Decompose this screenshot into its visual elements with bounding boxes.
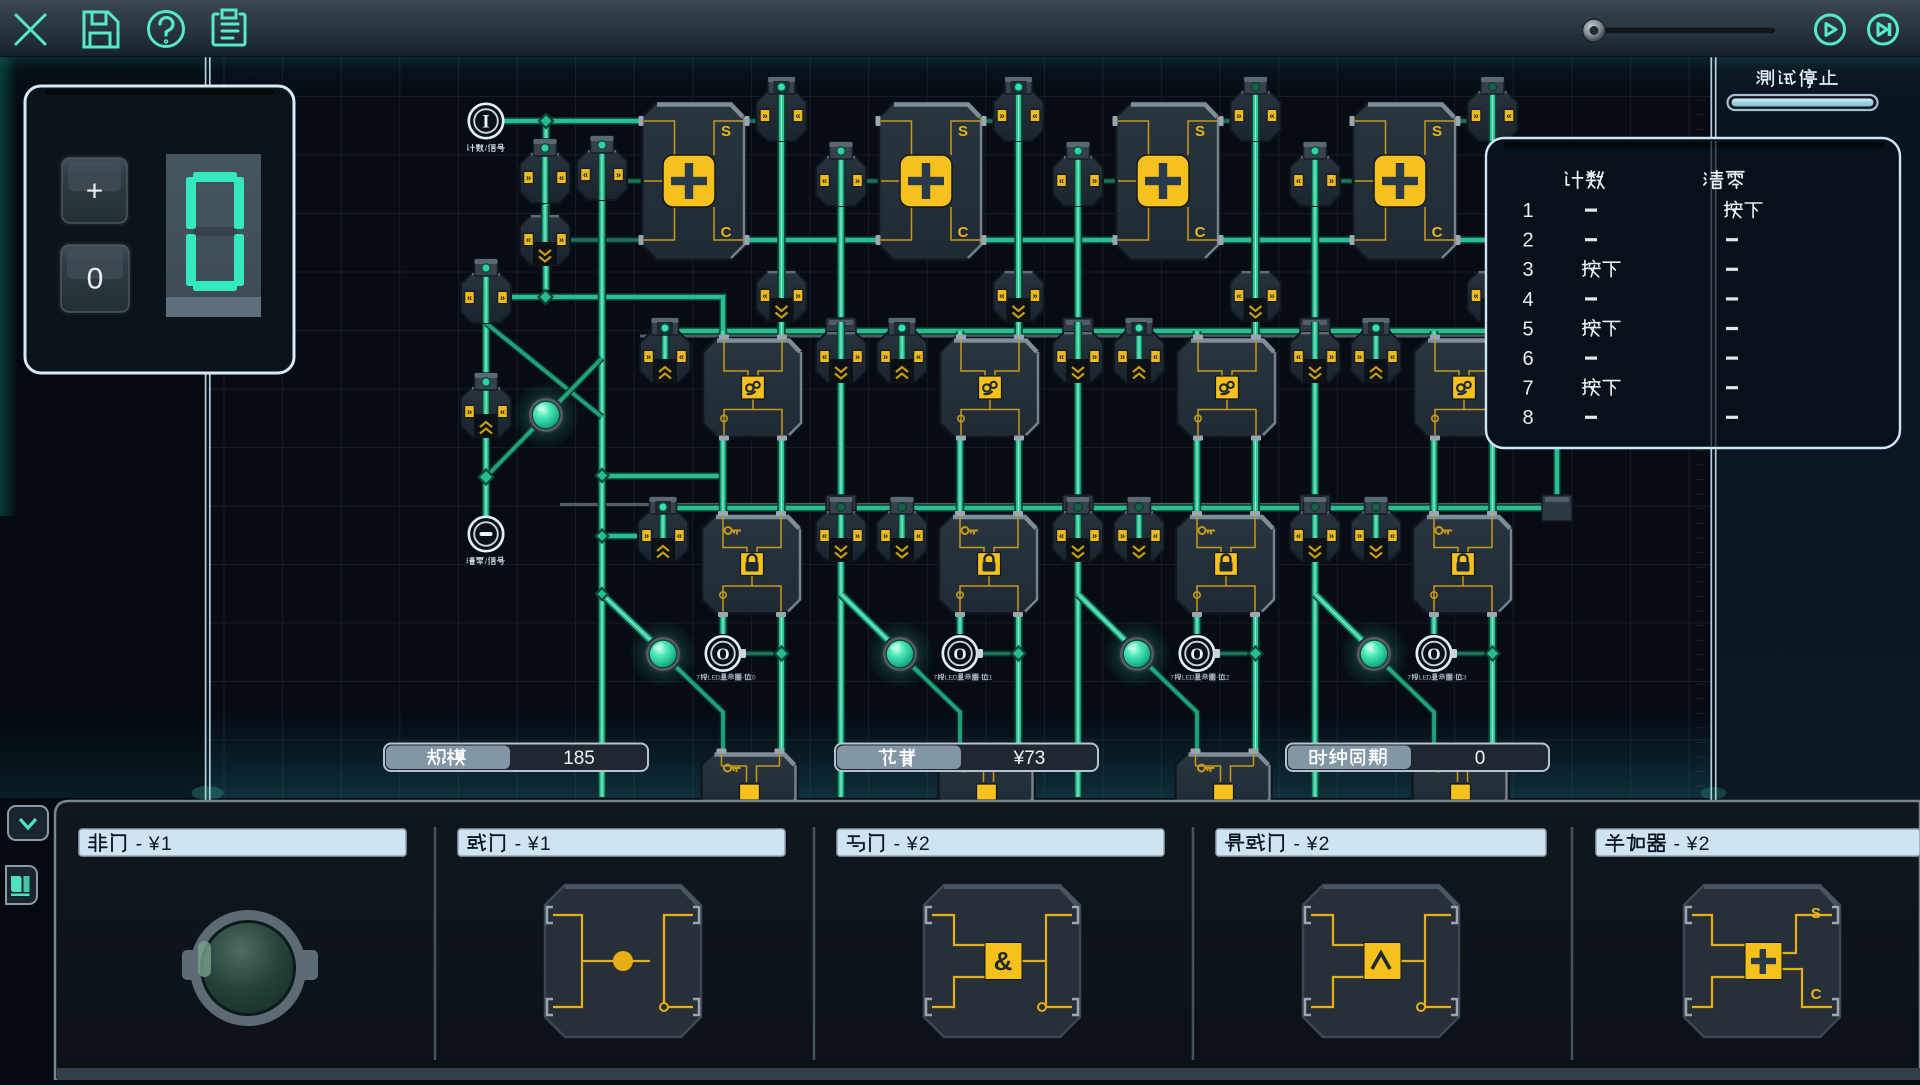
svg-text:O: O [953,645,966,664]
svg-text:»: » [883,352,888,363]
svg-text:«: « [1153,352,1158,363]
svg-text:»: » [1120,531,1125,542]
svg-text:1: 1 [1522,200,1533,222]
svg-text:-: - [1453,674,1455,681]
svg-text:»: » [762,111,767,122]
svg-text:»: » [795,291,800,302]
svg-text:»: » [1092,176,1097,187]
svg-text:O: O [716,645,729,664]
svg-text:C: C [1195,224,1206,241]
svg-text:«: « [1296,176,1301,187]
svg-text:2: 2 [1319,833,1330,855]
svg-text:¥: ¥ [1686,833,1698,855]
svg-text:»: » [1120,352,1125,363]
svg-text:«: « [679,352,684,363]
svg-text:¥: ¥ [1306,833,1318,855]
svg-text:¥73: ¥73 [1013,748,1046,769]
svg-text:-: - [894,833,901,855]
svg-text:S: S [1432,123,1442,140]
svg-text:2: 2 [1226,674,1230,681]
svg-text:3: 3 [1522,259,1533,281]
svg-text:1: 1 [161,833,172,855]
svg-text:¥: ¥ [527,833,539,855]
svg-text:I: I [482,112,489,133]
svg-text:-: - [1216,674,1218,681]
svg-text:«: « [1390,352,1395,363]
svg-text:D: D [1427,674,1432,681]
svg-text:«: « [1236,291,1241,302]
svg-text:7: 7 [1522,378,1533,400]
svg-text:«: « [795,111,800,122]
svg-text:&: & [994,946,1013,976]
svg-text:«: « [1390,531,1395,542]
svg-text:D: D [953,674,958,681]
svg-text:»: » [1329,176,1334,187]
svg-text:C: C [721,224,732,241]
svg-text:1: 1 [989,674,993,681]
svg-text:«: « [1296,531,1301,542]
svg-text:«: « [999,291,1004,302]
svg-text:¥: ¥ [148,833,160,855]
svg-text:185: 185 [563,748,595,769]
svg-text:»: » [855,531,860,542]
svg-text:S: S [1811,905,1821,922]
svg-text:»: » [1357,352,1362,363]
svg-text:«: « [1153,531,1158,542]
svg-text:2: 2 [1699,833,1710,855]
svg-text:-: - [742,674,744,681]
svg-text:»: » [999,111,1004,122]
svg-text:C: C [1811,986,1822,1003]
svg-text:»: » [855,352,860,363]
svg-text:-: - [1294,833,1301,855]
svg-text:7: 7 [696,674,700,681]
svg-text:»: » [1329,352,1334,363]
svg-text:»: » [1236,111,1241,122]
svg-text:2: 2 [1522,230,1533,252]
svg-text:7: 7 [1170,674,1174,681]
svg-text:4: 4 [1522,289,1533,311]
svg-text:O: O [1190,645,1203,664]
svg-text:«: « [500,407,505,418]
svg-text:»: » [644,531,649,542]
svg-text:-: - [979,674,981,681]
svg-text:«: « [822,531,827,542]
svg-text:3: 3 [1463,674,1467,681]
svg-text:»: » [1357,531,1362,542]
svg-text:6: 6 [1522,348,1533,370]
svg-text:C: C [958,224,969,241]
svg-text:»: » [616,170,621,181]
svg-text:2: 2 [919,833,930,855]
svg-text:«: « [822,352,827,363]
svg-text:»: » [467,407,472,418]
svg-text:»: » [646,352,651,363]
svg-text:+: + [86,175,104,208]
svg-text:«: « [762,291,767,302]
svg-text:»: » [1473,111,1478,122]
svg-text:1: 1 [540,833,551,855]
svg-text:-: - [1674,833,1681,855]
svg-text:0: 0 [87,263,104,296]
svg-text:¥: ¥ [906,833,918,855]
svg-text:»: » [559,235,564,246]
svg-text:»: » [883,531,888,542]
svg-text:C: C [1432,224,1443,241]
svg-text:«: « [1506,111,1511,122]
svg-text:«: « [1296,352,1301,363]
svg-text:»: » [1269,291,1274,302]
svg-text:«: « [822,176,827,187]
svg-text:«: « [583,170,588,181]
svg-text:8: 8 [1522,407,1533,429]
svg-text:«: « [1059,176,1064,187]
svg-text:0: 0 [752,674,756,681]
svg-text:«: « [526,235,531,246]
svg-text:S: S [721,123,731,140]
svg-text:5: 5 [1522,318,1533,340]
svg-text:«: « [677,531,682,542]
svg-text:»: » [500,293,505,304]
svg-text:»: » [855,176,860,187]
svg-text:-: - [515,833,522,855]
svg-text:»: » [1092,531,1097,542]
svg-text:D: D [1190,674,1195,681]
svg-text:«: « [1059,352,1064,363]
svg-text:«: « [467,293,472,304]
svg-text:-: - [136,833,143,855]
svg-text:«: « [1059,531,1064,542]
svg-text:S: S [958,123,968,140]
svg-text:S: S [1195,123,1205,140]
svg-text:»: » [526,173,531,184]
svg-text:7: 7 [1407,674,1411,681]
svg-text:«: « [1032,111,1037,122]
svg-text:»: » [1329,531,1334,542]
svg-text:O: O [1427,645,1440,664]
svg-text:«: « [916,352,921,363]
svg-text:«: « [559,173,564,184]
svg-text:»: » [1092,352,1097,363]
svg-text:«: « [916,531,921,542]
svg-text:7: 7 [933,674,937,681]
svg-text:«: « [1269,111,1274,122]
svg-text:0: 0 [1475,748,1486,769]
svg-text:»: » [1032,291,1037,302]
svg-text:«: « [1473,291,1478,302]
svg-text:D: D [716,674,721,681]
